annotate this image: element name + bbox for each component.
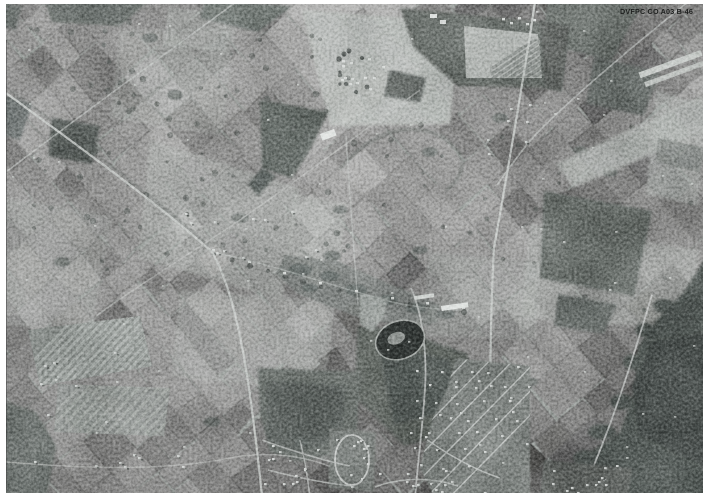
svg-text:DVFPC CO A03 B-46: DVFPC CO A03 B-46 — [620, 7, 693, 16]
